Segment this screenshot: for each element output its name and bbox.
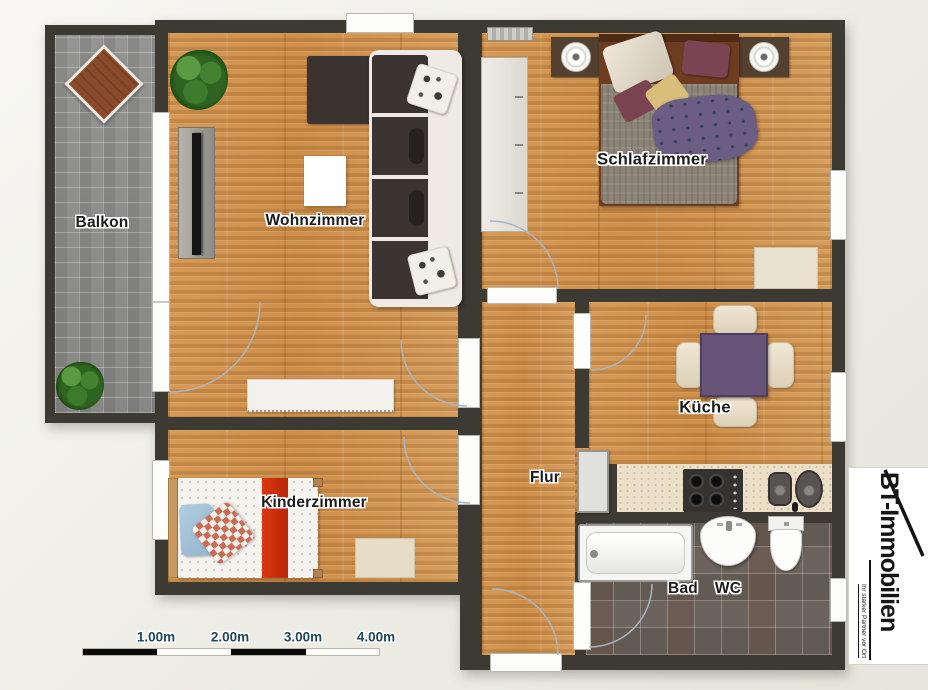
- label-kueche: Küche: [679, 399, 730, 418]
- bedpost-bottom: [313, 569, 323, 578]
- nightstand-right: [739, 37, 789, 77]
- chair-right: [766, 342, 794, 388]
- wardrobe-handle-2: [515, 144, 523, 146]
- kinderzimmer-rug: [355, 538, 415, 578]
- scale-label-4m: 4.00m: [357, 630, 395, 645]
- logo-underline: [869, 560, 871, 660]
- burner-3: [689, 492, 704, 507]
- label-flur: Flur: [530, 469, 560, 487]
- sofa-headrest-1: [409, 128, 424, 164]
- door-kueche: [573, 313, 591, 369]
- sink-basin-right: [795, 470, 823, 508]
- logo-title: BT-Immobilien: [874, 472, 903, 631]
- kids-bed-headboard: [168, 478, 178, 578]
- window-schlafzimmer: [830, 170, 847, 240]
- dining-table: [700, 333, 768, 397]
- tv-screen: [192, 133, 201, 255]
- flur-floor: [482, 302, 575, 655]
- lamp-left: [561, 42, 591, 72]
- bathtub: [578, 524, 693, 582]
- scale-label-3m: 3.00m: [284, 630, 322, 645]
- sink-basin-left: [768, 472, 792, 506]
- label-wohnzimmer: Wohnzimmer: [265, 212, 364, 230]
- sofa-chaise: [307, 56, 373, 124]
- balcony-door-window: [152, 112, 170, 392]
- sofa-headrest-2: [409, 190, 424, 226]
- washbasin-faucet: [726, 521, 732, 531]
- bedpost-top: [313, 478, 323, 487]
- coffee-table: [304, 156, 346, 206]
- burner-4: [709, 492, 724, 507]
- label-balkon: Balkon: [76, 214, 129, 232]
- door-schlafzimmer: [487, 287, 557, 304]
- bathtub-basin: [586, 532, 685, 574]
- nightstand-left: [551, 37, 601, 77]
- schlafzimmer-rug: [754, 247, 818, 289]
- sideboard: [247, 379, 394, 412]
- window-kueche: [830, 372, 847, 442]
- toilet: [768, 516, 804, 574]
- burner-1: [689, 474, 704, 489]
- wardrobe: [481, 57, 528, 232]
- kids-bed-runner: [262, 478, 288, 578]
- single-bed: [168, 478, 324, 578]
- door-wohnzimmer: [458, 338, 480, 408]
- floor-plan-canvas: Balkon Wohnzimmer Schlafzimmer Küche Flu…: [0, 0, 928, 690]
- sink-faucet: [792, 502, 798, 512]
- scale-segment-3: [231, 649, 306, 655]
- door-kinderzimmer: [458, 435, 480, 505]
- flur-cabinet: [577, 450, 609, 513]
- scale-label-1m: 1.00m: [137, 630, 175, 645]
- agency-logo-rotated: BT-Immobilien Ihr starker Partner vor Or…: [849, 468, 928, 664]
- logo-tagline: Ihr starker Partner vor Ort: [858, 584, 867, 658]
- toilet-button: [784, 522, 789, 526]
- window-divider: [153, 301, 169, 303]
- scale-label-2m: 2.00m: [211, 630, 249, 645]
- scale-segment-1: [83, 649, 157, 655]
- stove-knobs: [730, 473, 740, 509]
- sofa-pillow-bottom: [407, 246, 458, 297]
- label-wc: WC: [715, 580, 741, 598]
- stove: [683, 469, 743, 512]
- washbasin-tap-left: [717, 523, 723, 526]
- door-entrance: [490, 653, 562, 672]
- wardrobe-handle-1: [515, 96, 523, 98]
- corner-sofa: [369, 50, 462, 307]
- toilet-bowl: [770, 529, 802, 571]
- scale-bar: [82, 648, 380, 656]
- chair-top: [713, 305, 757, 335]
- bed-headboard: [599, 34, 739, 42]
- label-schlafzimmer: Schlafzimmer: [597, 151, 707, 170]
- label-bad: Bad: [668, 580, 698, 598]
- washbasin-tap-right: [736, 523, 742, 526]
- window-bad: [830, 578, 847, 622]
- bathtub-faucet: [590, 550, 598, 558]
- kitchen-sink: [766, 468, 826, 512]
- radiator: [487, 27, 533, 41]
- lamp-right: [749, 42, 779, 72]
- agency-logo: BT-Immobilien Ihr starker Partner vor Or…: [848, 467, 928, 665]
- tv-board: [178, 127, 215, 259]
- label-kinderzimmer: Kinderzimmer: [261, 494, 367, 512]
- pillow-plum-1: [681, 40, 730, 79]
- double-bed: [599, 34, 739, 206]
- burner-2: [709, 474, 724, 489]
- window-top: [346, 13, 414, 33]
- door-bad: [573, 582, 591, 650]
- wardrobe-handle-3: [515, 192, 523, 194]
